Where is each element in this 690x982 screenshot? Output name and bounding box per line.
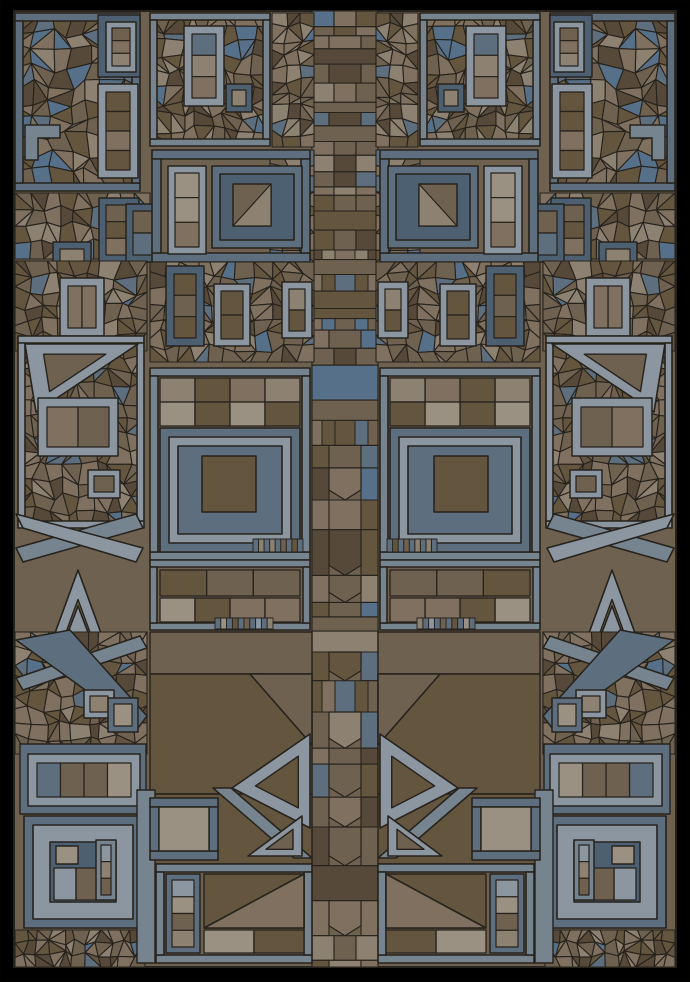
mosaic-artwork-page [0,0,690,982]
mosaic-artwork [0,0,690,982]
